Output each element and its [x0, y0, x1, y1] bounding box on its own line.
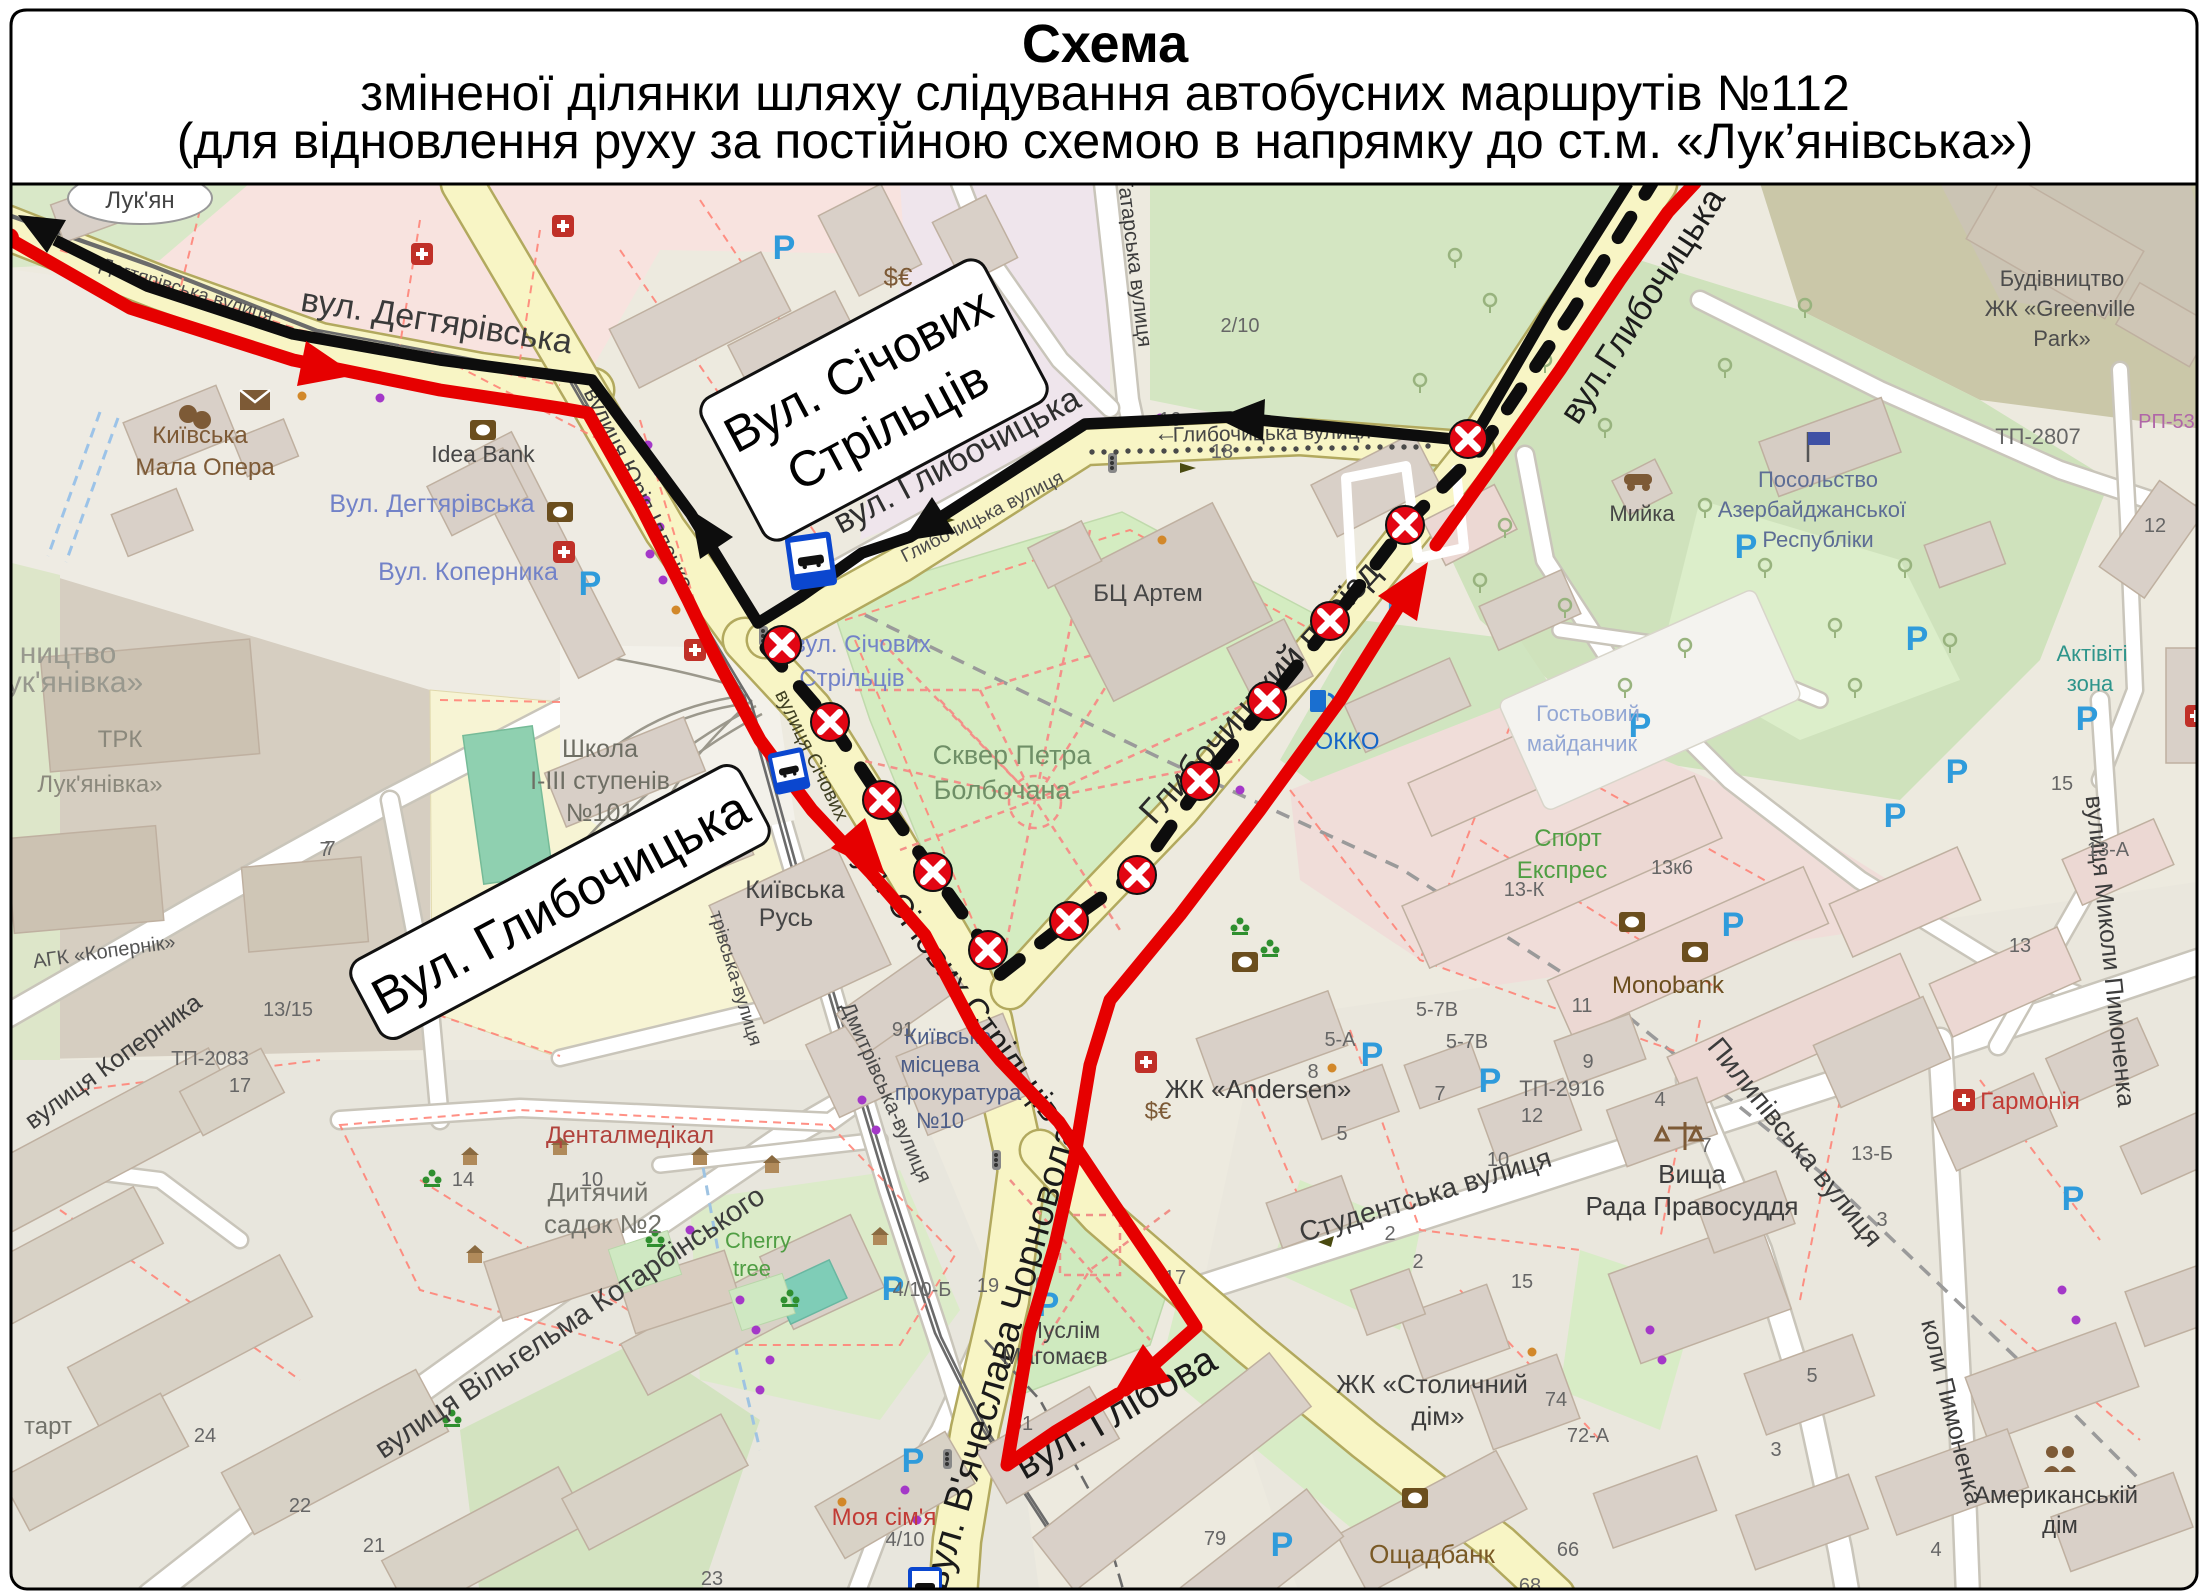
svg-text:5: 5	[1806, 1365, 1817, 1387]
svg-text:12: 12	[2144, 515, 2166, 537]
svg-text:Вул. Коперника: Вул. Коперника	[378, 558, 558, 586]
svg-text:5: 5	[1336, 1123, 1347, 1145]
svg-text:P: P	[579, 565, 602, 603]
svg-text:4/10-Б: 4/10-Б	[893, 1279, 952, 1301]
svg-text:66: 66	[1557, 1539, 1579, 1561]
svg-text:P: P	[2076, 700, 2099, 738]
svg-text:БЦ Артем: БЦ Артем	[1093, 580, 1203, 607]
svg-text:ЖК «Greenville: ЖК «Greenville	[1985, 296, 2136, 321]
svg-text:місцева: місцева	[900, 1052, 980, 1077]
svg-text:18: 18	[1211, 441, 1233, 463]
svg-text:2/10: 2/10	[1221, 315, 1260, 337]
svg-text:P: P	[1479, 1062, 1502, 1100]
svg-text:74: 74	[1545, 1389, 1567, 1411]
svg-text:21: 21	[363, 1535, 385, 1557]
svg-text:ТРК: ТРК	[98, 726, 143, 753]
svg-text:23: 23	[701, 1568, 723, 1590]
svg-text:Азербайджанської: Азербайджанської	[1718, 497, 1906, 522]
svg-text:19: 19	[977, 1275, 999, 1297]
svg-text:№10: №10	[916, 1108, 964, 1133]
svg-text:(для відновлення руху за пості: (для відновлення руху за постійною схемо…	[177, 113, 2034, 169]
svg-text:Стрільців: Стрільців	[799, 665, 904, 692]
svg-text:7: 7	[1434, 1083, 1445, 1105]
svg-text:15: 15	[2051, 773, 2073, 795]
svg-text:P: P	[1735, 528, 1758, 566]
svg-text:Республіки: Республіки	[1762, 527, 1873, 552]
svg-text:Вища: Вища	[1658, 1159, 1726, 1189]
svg-text:13/15: 13/15	[263, 999, 313, 1021]
svg-text:Cherry: Cherry	[725, 1228, 791, 1253]
svg-text:13: 13	[2009, 935, 2031, 957]
svg-text:P: P	[1271, 1526, 1294, 1564]
svg-text:Моя сім'я: Моя сім'я	[832, 1504, 937, 1531]
svg-text:Київська: Київська	[152, 422, 248, 449]
svg-text:І-ІІІ ступенів: І-ІІІ ступенів	[530, 767, 670, 795]
svg-text:P: P	[1946, 753, 1969, 791]
svg-text:Київська: Київська	[745, 876, 844, 904]
svg-text:Park»: Park»	[2033, 326, 2090, 351]
svg-text:Лук'ян: Лук'ян	[105, 187, 174, 214]
svg-text:Болбочана: Болбочана	[934, 775, 1072, 805]
svg-text:P: P	[1361, 1036, 1384, 1074]
svg-text:91: 91	[892, 1019, 914, 1041]
svg-text:3: 3	[1770, 1439, 1781, 1461]
svg-text:прокуратура: прокуратура	[895, 1080, 1022, 1105]
svg-text:дім»: дім»	[1411, 1401, 1464, 1431]
svg-text:Monobank: Monobank	[1612, 972, 1725, 999]
svg-text:10: 10	[1487, 1149, 1509, 1171]
svg-text:Ощадбанк: Ощадбанк	[1369, 1539, 1495, 1569]
svg-text:10: 10	[581, 1169, 603, 1191]
svg-text:14: 14	[452, 1169, 474, 1191]
svg-text:садок №2: садок №2	[544, 1209, 662, 1239]
svg-text:P: P	[773, 229, 796, 267]
svg-text:4: 4	[1930, 1539, 1941, 1561]
svg-text:Idea Bank: Idea Bank	[431, 441, 535, 467]
svg-text:8: 8	[1307, 1061, 1318, 1083]
svg-text:9: 9	[1582, 1051, 1593, 1073]
svg-text:Сквер Петра: Сквер Петра	[933, 740, 1093, 770]
svg-text:зона: зона	[2067, 671, 2114, 696]
svg-text:Спорт: Спорт	[1534, 825, 1602, 852]
svg-text:12: 12	[1521, 1105, 1543, 1127]
svg-text:Рада Правосуддя: Рада Правосуддя	[1586, 1191, 1799, 1221]
svg-text:дім: дім	[2042, 1512, 2078, 1539]
svg-text:15: 15	[1511, 1271, 1533, 1293]
svg-text:13-Б: 13-Б	[1851, 1143, 1893, 1165]
svg-text:24: 24	[194, 1425, 216, 1447]
svg-text:ТП-2083: ТП-2083	[171, 1048, 249, 1070]
svg-text:17: 17	[229, 1075, 251, 1097]
svg-text:4: 4	[1654, 1089, 1665, 1111]
svg-text:13к6: 13к6	[1651, 857, 1693, 879]
svg-text:4/10: 4/10	[886, 1529, 925, 1551]
svg-text:5-7В: 5-7В	[1416, 999, 1458, 1021]
svg-text:7: 7	[1700, 1135, 1711, 1157]
svg-text:tree: tree	[733, 1256, 771, 1281]
svg-text:2: 2	[1412, 1251, 1423, 1273]
svg-text:5-7В: 5-7В	[1446, 1031, 1488, 1053]
svg-text:Актівіті: Актівіті	[2056, 641, 2127, 666]
svg-text:тарт: тарт	[24, 1413, 72, 1440]
svg-text:P: P	[1722, 906, 1745, 944]
svg-text:Американській: Американській	[1974, 1482, 2138, 1509]
svg-text:Лук'янівка»: Лук'янівка»	[37, 771, 162, 798]
svg-text:79: 79	[1204, 1528, 1226, 1550]
svg-text:Мала Опера: Мала Опера	[135, 454, 275, 481]
svg-text:$€: $€	[884, 262, 913, 292]
svg-text:Посольство: Посольство	[1758, 467, 1878, 492]
svg-text:P: P	[1884, 797, 1907, 835]
svg-text:P: P	[2062, 1180, 2085, 1218]
svg-text:22: 22	[289, 1495, 311, 1517]
svg-text:13-А: 13-А	[2087, 839, 2130, 861]
svg-text:Мийка: Мийка	[1609, 501, 1675, 526]
svg-text:ТП-2807: ТП-2807	[1995, 424, 2081, 449]
svg-text:3: 3	[1876, 1209, 1887, 1231]
svg-text:ЖК «Столичний: ЖК «Столичний	[1336, 1369, 1528, 1399]
svg-text:72-А: 72-А	[1567, 1425, 1610, 1447]
svg-text:Русь: Русь	[759, 904, 813, 932]
svg-text:Школа: Школа	[562, 735, 638, 763]
svg-text:13-К: 13-К	[1504, 879, 1545, 901]
svg-text:ТП-2916: ТП-2916	[1519, 1076, 1605, 1101]
svg-text:ЖК «Andersen»: ЖК «Andersen»	[1165, 1074, 1352, 1104]
svg-text:Будівництво: Будівництво	[2000, 266, 2124, 291]
svg-text:Гармонія: Гармонія	[1980, 1088, 2080, 1115]
svg-text:$€: $€	[1145, 1098, 1172, 1125]
svg-text:5-А: 5-А	[1324, 1029, 1356, 1051]
svg-text:Гостьовий: Гостьовий	[1536, 701, 1640, 726]
svg-text:11: 11	[1572, 995, 1593, 1017]
svg-text:P: P	[1906, 620, 1929, 658]
svg-text:7: 7	[324, 838, 335, 860]
svg-text:майданчик: майданчик	[1527, 731, 1638, 756]
svg-text:ук'янівка»: ук'янівка»	[7, 666, 143, 699]
svg-text:Вул. Дегтярівська: Вул. Дегтярівська	[329, 490, 534, 518]
svg-text:P: P	[902, 1442, 925, 1480]
svg-text:вул. Січових: вул. Січових	[793, 631, 931, 658]
svg-text:2: 2	[1384, 1223, 1395, 1245]
svg-text:Денталмедікал: Денталмедікал	[546, 1122, 714, 1149]
